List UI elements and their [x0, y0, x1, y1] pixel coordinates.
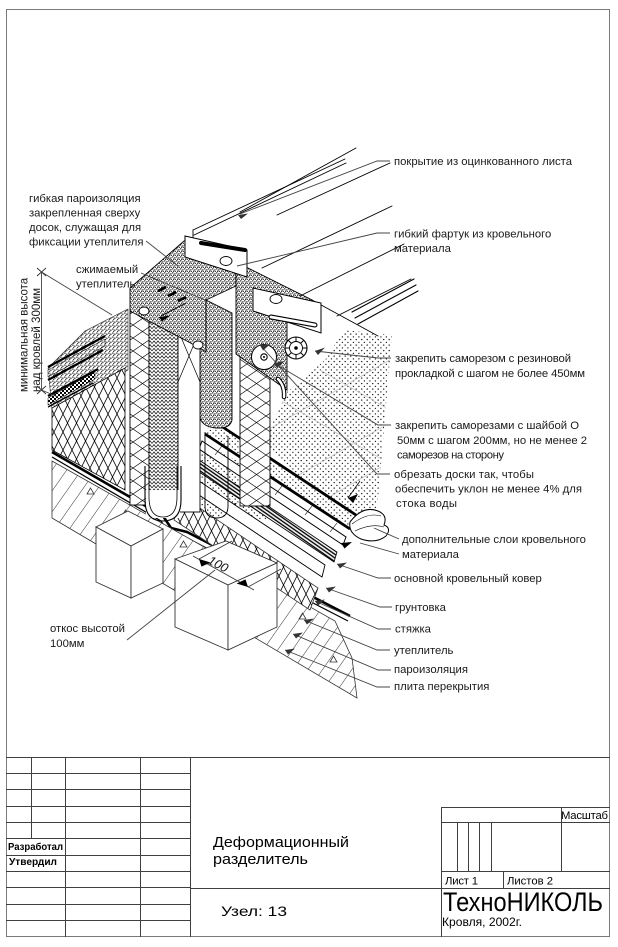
svg-text:гибкая пароизоляция: гибкая пароизоляция — [29, 193, 141, 205]
svg-text:утеплитель: утеплитель — [76, 279, 136, 291]
svg-text:стока воды: стока воды — [396, 498, 457, 510]
svg-text:закрепленная сверху: закрепленная сверху — [29, 208, 141, 220]
svg-text:Разработал: Разработал — [8, 841, 63, 853]
svg-text:ТехноНИКОЛЬ: ТехноНИКОЛЬ — [443, 887, 603, 917]
svg-text:стяжка: стяжка — [395, 624, 432, 636]
svg-text:гибкий фартук из кровельного: гибкий фартук из кровельного — [394, 229, 551, 241]
svg-text:разделитель: разделитель — [213, 851, 308, 868]
svg-text:дополнительные слои кровельног: дополнительные слои кровельного — [402, 534, 586, 546]
svg-text:50мм с шагом 200мм, но не мене: 50мм с шагом 200мм, но не менее 2 — [397, 435, 587, 447]
svg-text:Утвердил: Утвердил — [9, 857, 57, 868]
svg-text:сжимаемый: сжимаемый — [76, 264, 138, 276]
svg-text:100мм: 100мм — [50, 638, 84, 650]
svg-text:саморезов на сторону: саморезов на сторону — [397, 450, 504, 462]
svg-text:прокладкой с шагом не более 45: прокладкой с шагом не более 450мм — [395, 368, 585, 380]
svg-text:минимальная высота: минимальная высота — [19, 277, 31, 392]
svg-text:обеспечить уклон не менее 4% д: обеспечить уклон не менее 4% для — [395, 484, 582, 496]
svg-text:Узел: 13: Узел: 13 — [221, 903, 287, 919]
svg-text:закрепить саморезом с резиново: закрепить саморезом с резиновой — [395, 353, 571, 365]
svg-text:грунтовка: грунтовка — [395, 602, 447, 614]
svg-text:материала: материала — [402, 549, 460, 561]
svg-text:досок, служащая для: досок, служащая для — [29, 222, 141, 234]
svg-text:фиксации утеплителя: фиксации утеплителя — [29, 237, 144, 249]
svg-text:пароизоляция: пароизоляция — [394, 664, 468, 676]
svg-text:плита перекрытия: плита перекрытия — [394, 681, 489, 693]
svg-text:откос высотой: откос высотой — [50, 623, 125, 635]
svg-text:Кровля, 2002г.: Кровля, 2002г. — [442, 915, 522, 929]
svg-text:Листов 2: Листов 2 — [507, 876, 553, 888]
svg-text:основной кровельный ковер: основной кровельный ковер — [394, 573, 542, 585]
svg-text:покрытие из оцинкованного лист: покрытие из оцинкованного листа — [394, 156, 573, 168]
svg-text:утеплитель: утеплитель — [394, 645, 454, 657]
svg-text:материала: материала — [394, 243, 452, 255]
svg-text:закрепить саморезами с шайбой: закрепить саморезами с шайбой О — [395, 420, 579, 432]
svg-text:обрезать доски так, чтобы: обрезать доски так, чтобы — [394, 469, 534, 481]
svg-text:Масштаб: Масштаб — [561, 810, 608, 822]
svg-text:Лист 1: Лист 1 — [445, 876, 478, 888]
svg-text:Деформационный: Деформационный — [213, 834, 349, 851]
